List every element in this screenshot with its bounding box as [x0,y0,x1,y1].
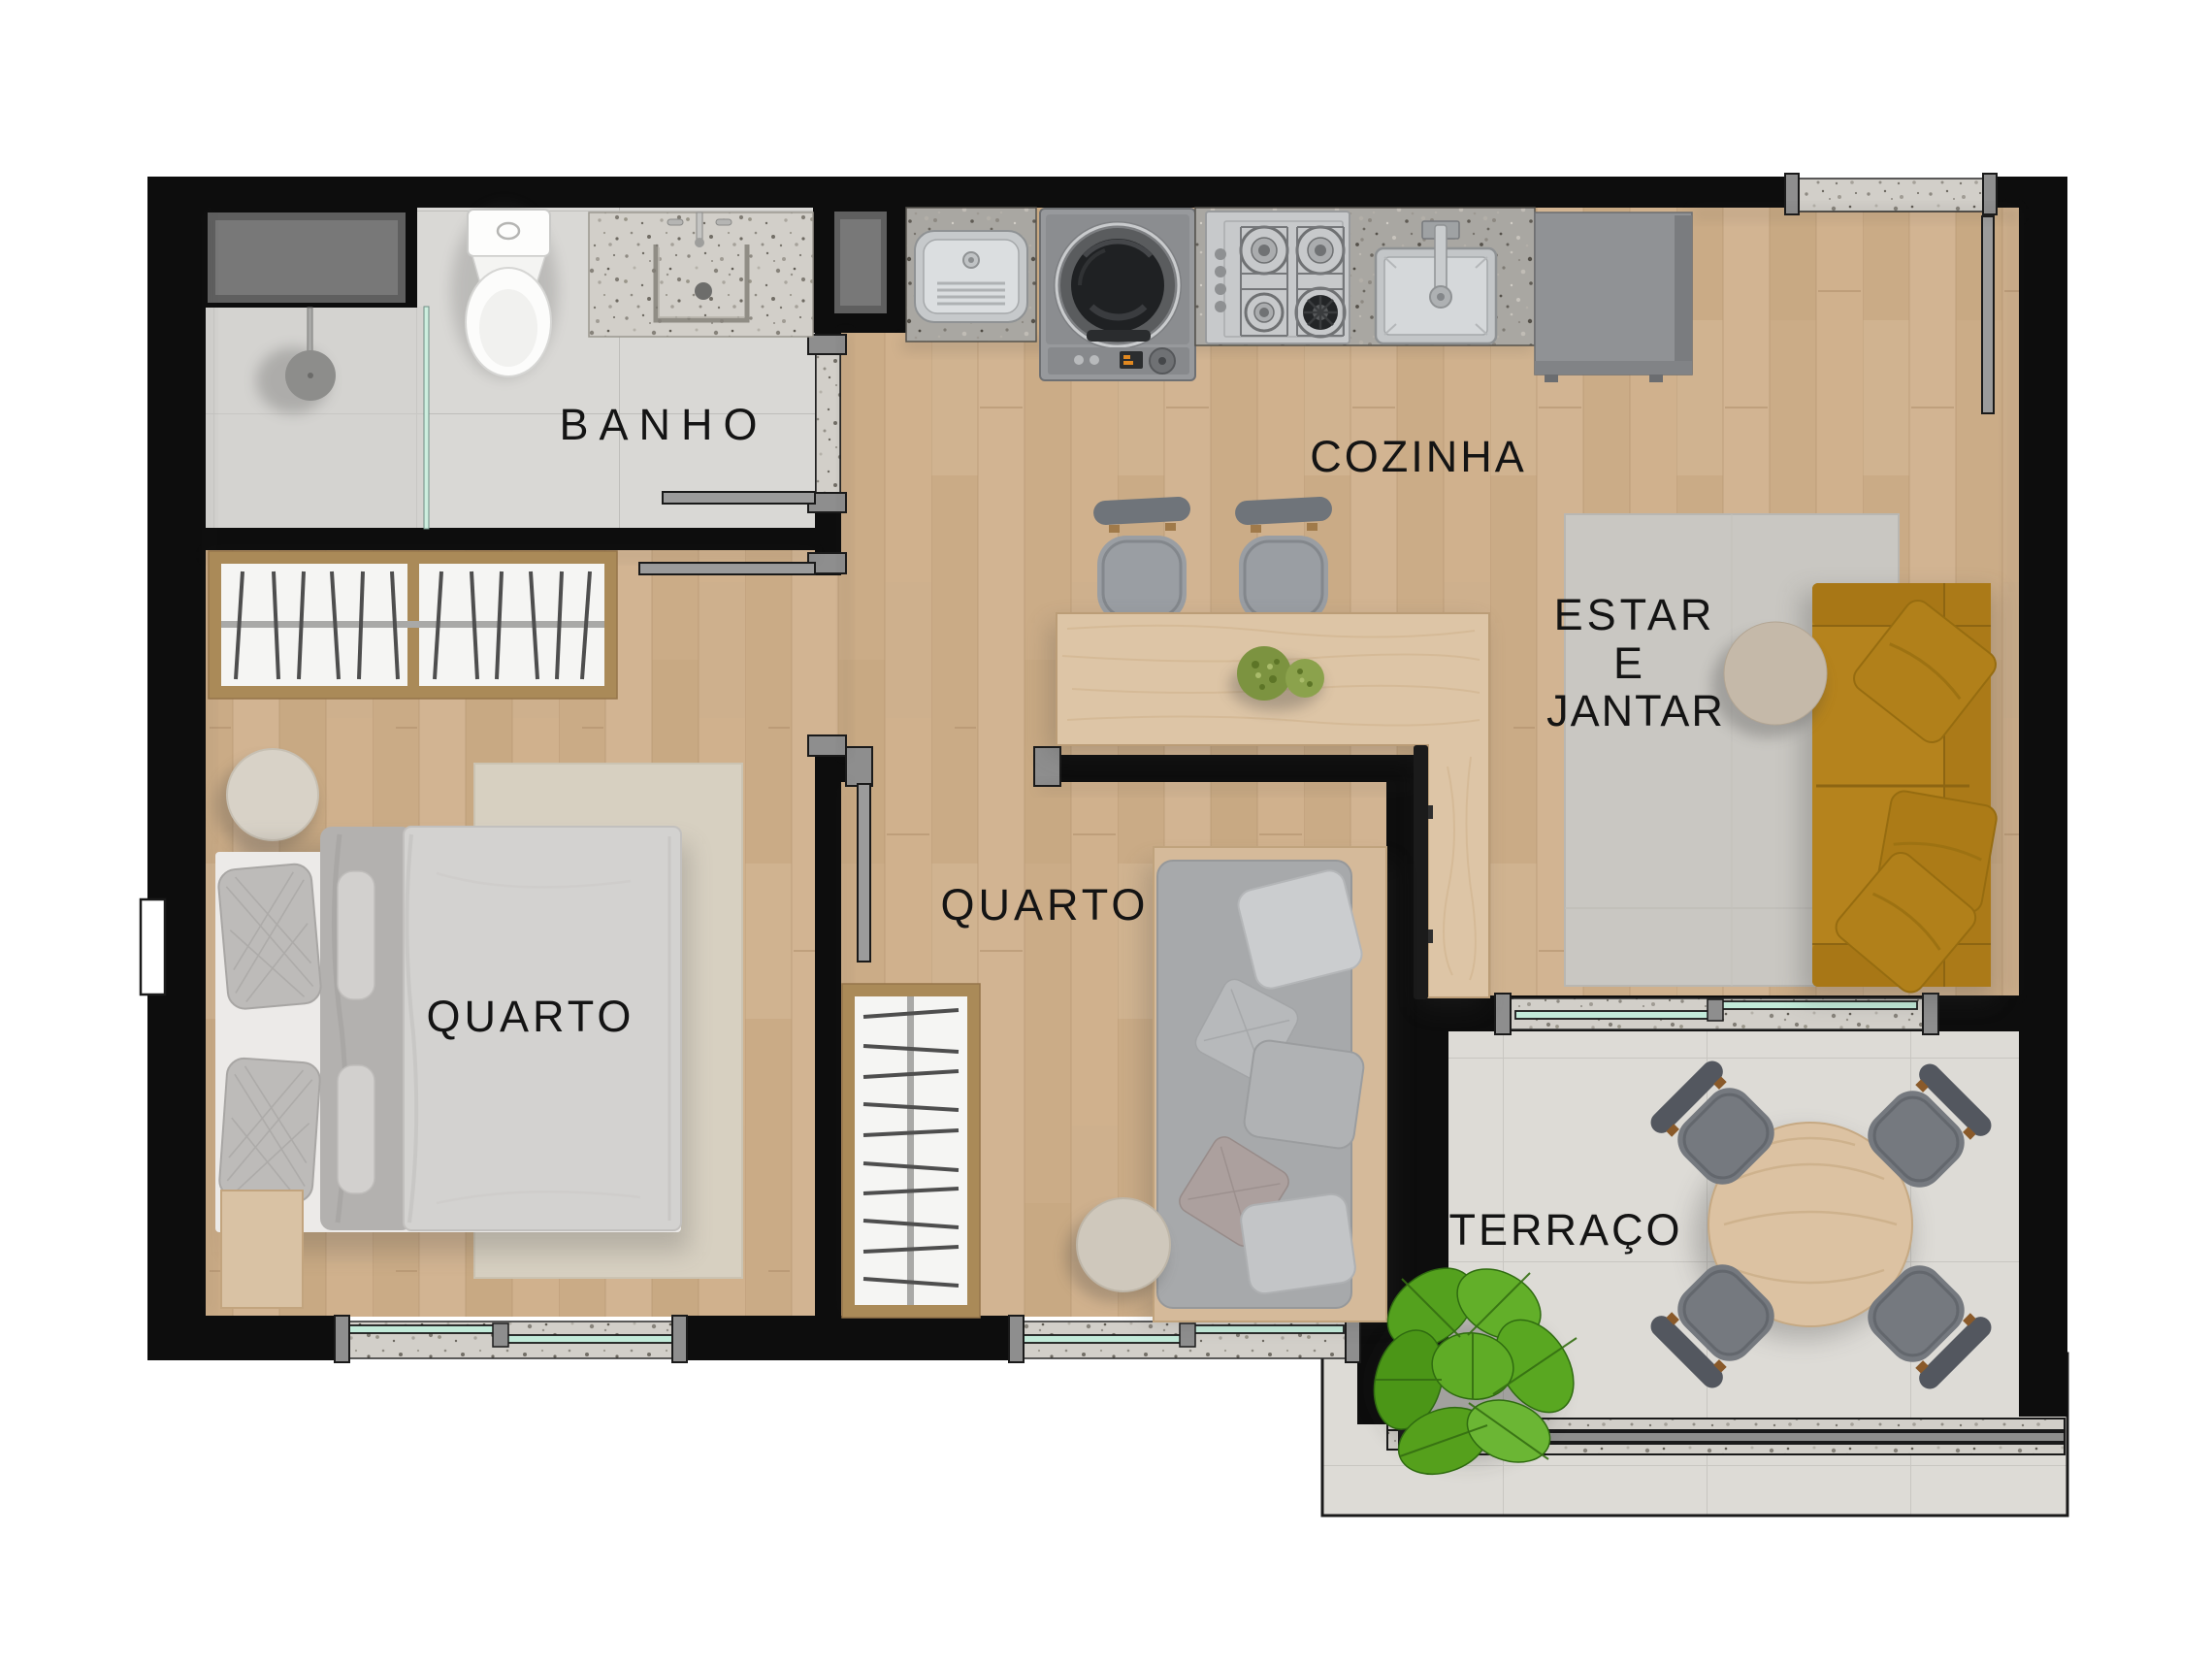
svg-text:ESTAR: ESTAR [1554,590,1716,639]
svg-text:JANTAR: JANTAR [1546,686,1725,735]
svg-text:E: E [1613,638,1646,688]
svg-text:BANHO: BANHO [559,400,767,449]
svg-text:QUARTO: QUARTO [941,880,1150,930]
svg-text:QUARTO: QUARTO [427,992,635,1041]
svg-text:COZINHA: COZINHA [1310,432,1527,481]
svg-text:TERRAÇO: TERRAÇO [1448,1205,1682,1255]
